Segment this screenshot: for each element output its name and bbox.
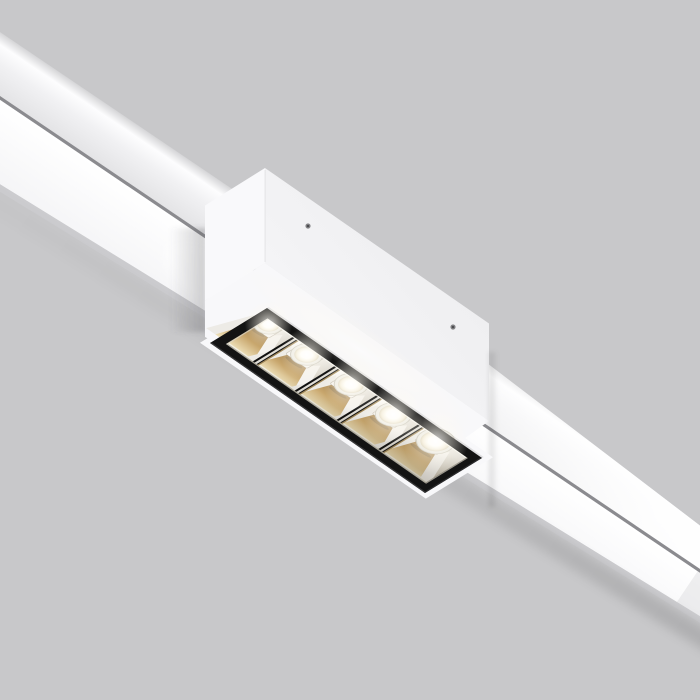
track-end-shade-left — [170, 228, 206, 332]
screw-dot — [305, 223, 310, 228]
body-shadow-on-track — [489, 352, 498, 507]
product-photo-stage — [0, 0, 700, 700]
track-light-product-photo — [0, 0, 700, 700]
lens-bloom — [403, 409, 468, 474]
screw-dot — [450, 324, 455, 329]
lens-bloom — [280, 328, 333, 381]
